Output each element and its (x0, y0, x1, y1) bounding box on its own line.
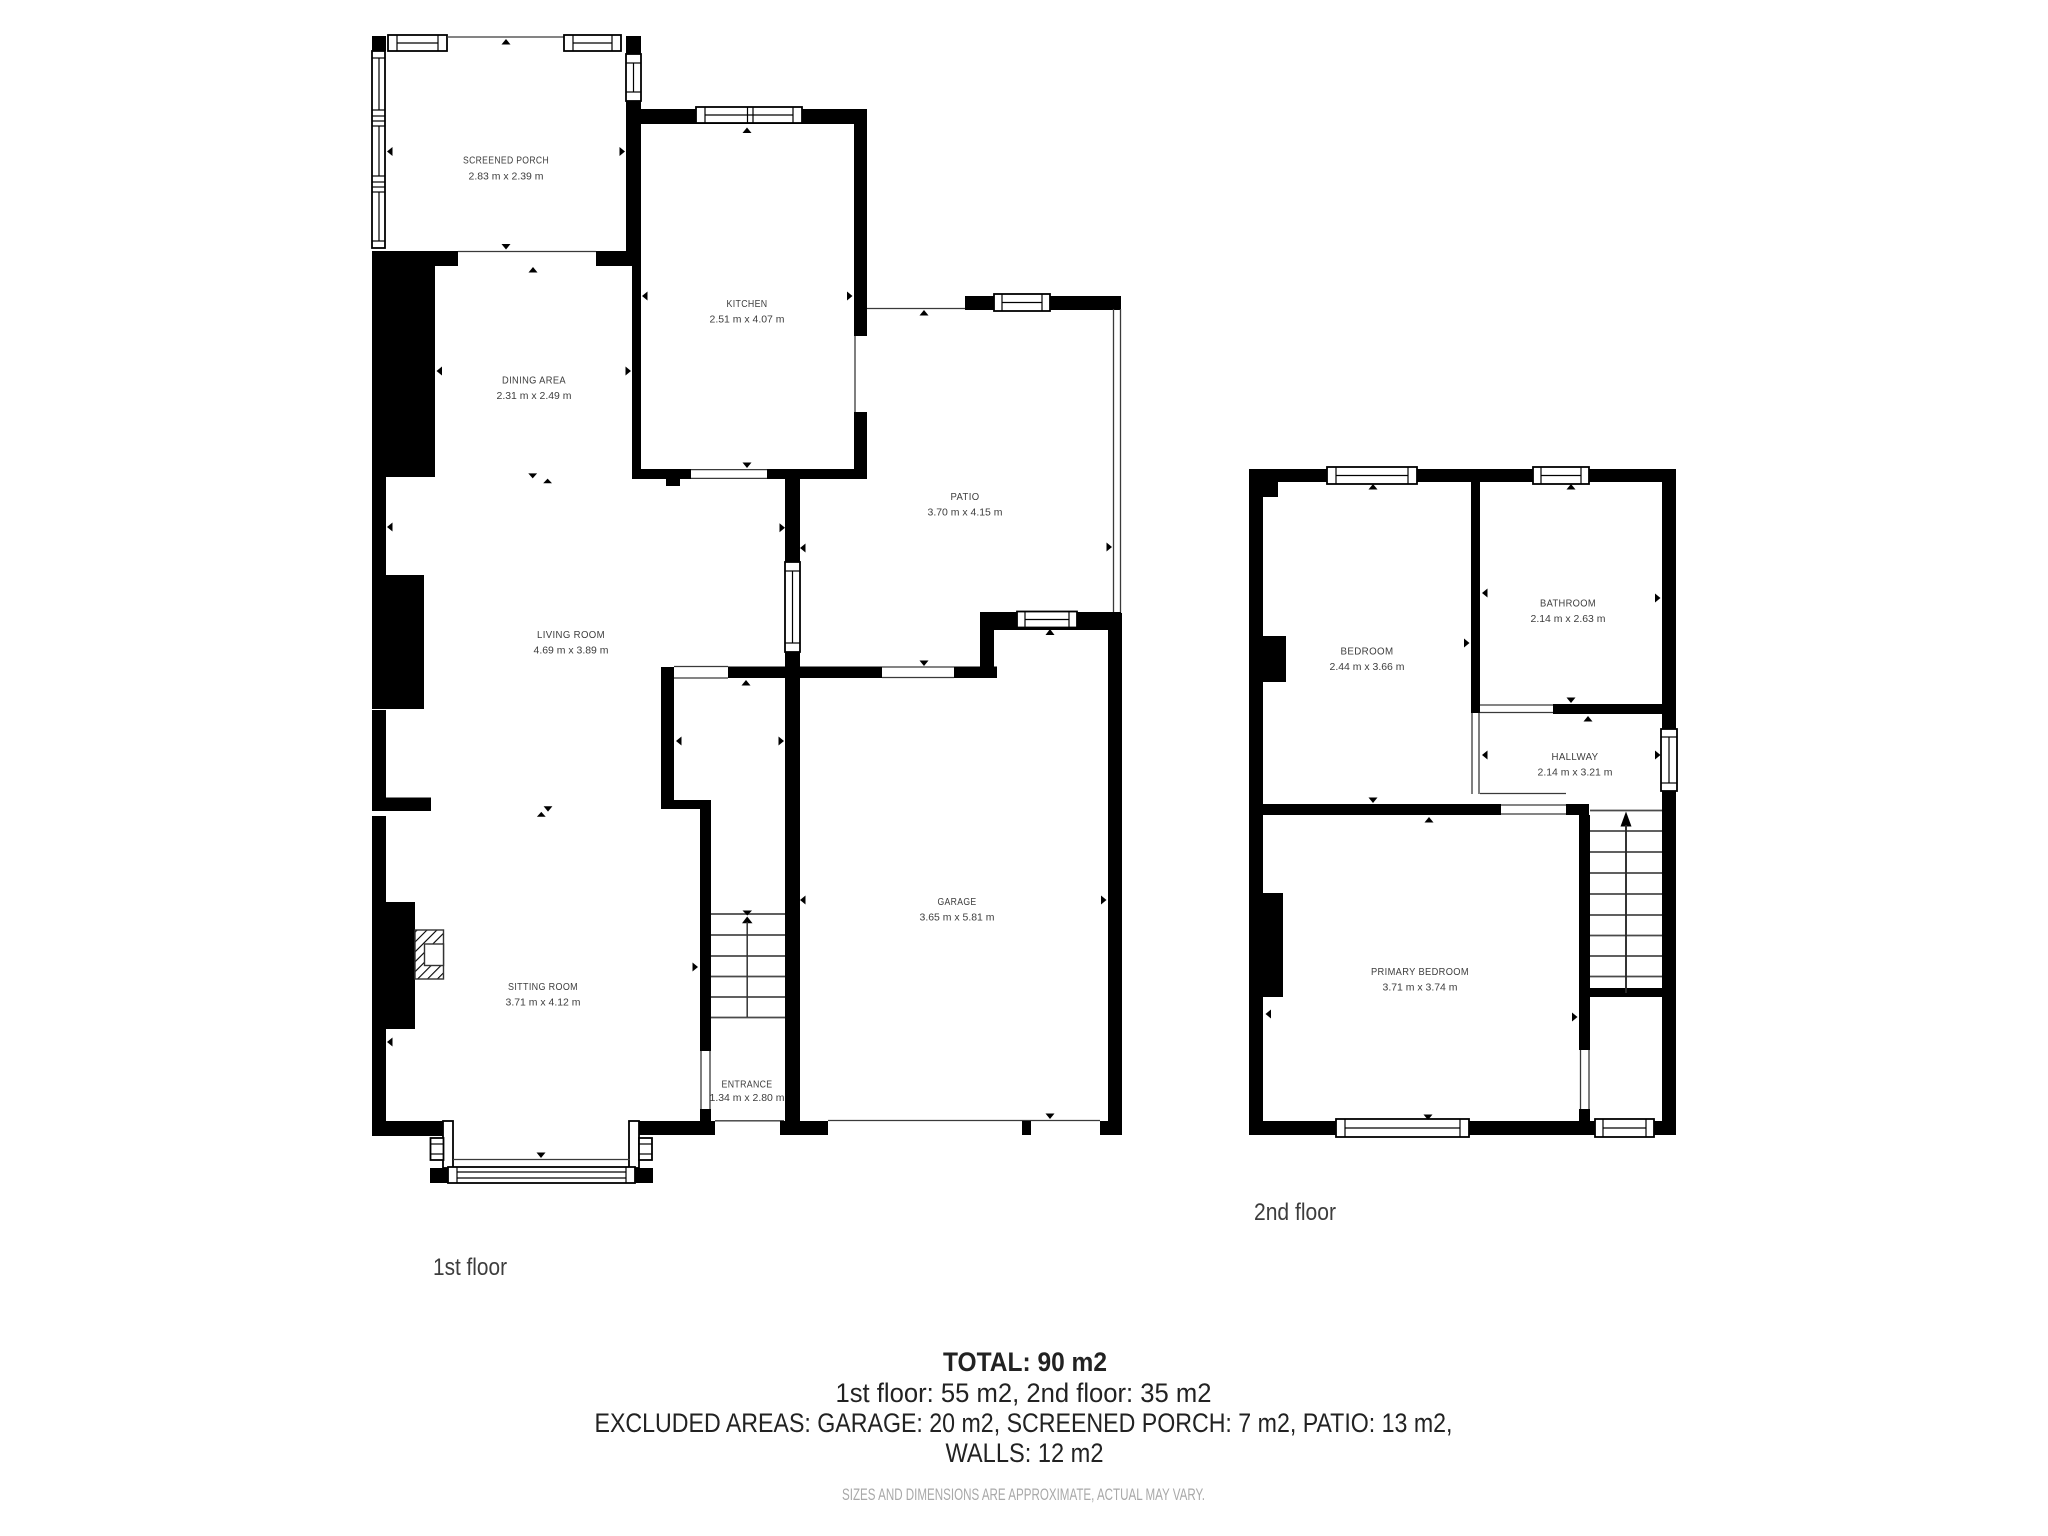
svg-text:SIZES AND DIMENSIONS ARE APPRO: SIZES AND DIMENSIONS ARE APPROXIMATE, AC… (842, 1486, 1205, 1504)
svg-text:3.70 m x 4.15 m: 3.70 m x 4.15 m (928, 507, 1003, 519)
svg-text:SCREENED PORCH: SCREENED PORCH (463, 155, 549, 167)
svg-text:PATIO: PATIO (951, 491, 980, 503)
svg-text:SITTING ROOM: SITTING ROOM (508, 981, 578, 993)
svg-text:WALLS: 12 m2: WALLS: 12 m2 (946, 1438, 1104, 1468)
svg-text:ENTRANCE: ENTRANCE (722, 1079, 773, 1091)
svg-text:3.71 m x 4.12 m: 3.71 m x 4.12 m (506, 997, 581, 1009)
svg-text:2.51 m x 4.07 m: 2.51 m x 4.07 m (710, 314, 785, 326)
svg-text:EXCLUDED AREAS: GARAGE: 20 m2,: EXCLUDED AREAS: GARAGE: 20 m2, SCREENED … (595, 1408, 1453, 1438)
svg-text:2.14 m x 3.21 m: 2.14 m x 3.21 m (1538, 767, 1613, 779)
svg-text:GARAGE: GARAGE (938, 896, 977, 908)
svg-text:TOTAL: 90 m2: TOTAL: 90 m2 (943, 1347, 1107, 1377)
svg-text:KITCHEN: KITCHEN (727, 298, 768, 310)
svg-text:2.31 m x 2.49 m: 2.31 m x 2.49 m (497, 390, 572, 402)
svg-text:3.65 m x 5.81 m: 3.65 m x 5.81 m (920, 912, 995, 924)
svg-text:1.34 m x 2.80 m: 1.34 m x 2.80 m (710, 1092, 785, 1104)
svg-text:2nd floor: 2nd floor (1254, 1199, 1336, 1226)
svg-text:1st floor: 55 m2, 2nd floor: 3: 1st floor: 55 m2, 2nd floor: 35 m2 (836, 1378, 1212, 1408)
svg-text:3.71 m x 3.74 m: 3.71 m x 3.74 m (1383, 982, 1458, 994)
svg-text:2.44 m x 3.66 m: 2.44 m x 3.66 m (1330, 661, 1405, 673)
svg-text:HALLWAY: HALLWAY (1552, 751, 1599, 763)
svg-text:BEDROOM: BEDROOM (1341, 646, 1394, 658)
svg-text:1st floor: 1st floor (433, 1254, 507, 1281)
svg-text:2.14 m x 2.63 m: 2.14 m x 2.63 m (1531, 613, 1606, 625)
svg-text:DINING AREA: DINING AREA (502, 375, 566, 387)
svg-text:LIVING ROOM: LIVING ROOM (537, 629, 605, 641)
svg-text:PRIMARY BEDROOM: PRIMARY BEDROOM (1371, 966, 1469, 978)
svg-text:4.69 m x 3.89 m: 4.69 m x 3.89 m (534, 645, 609, 657)
svg-text:2.83 m x 2.39 m: 2.83 m x 2.39 m (469, 171, 544, 183)
svg-text:BATHROOM: BATHROOM (1540, 598, 1596, 610)
